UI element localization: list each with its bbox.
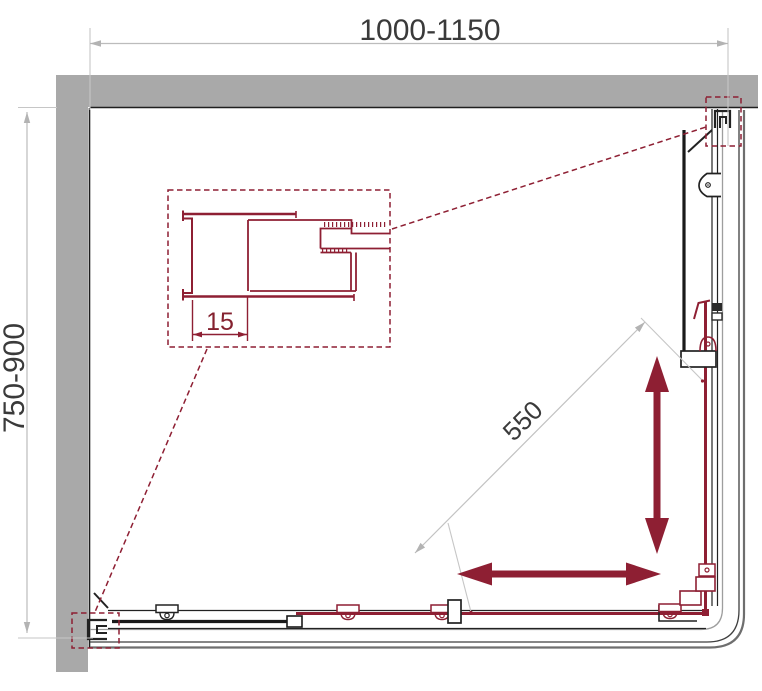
roller-sliding-door-1 (337, 605, 359, 620)
dim-line (415, 322, 645, 553)
dimension-width-label: 1000-1150 (359, 14, 500, 47)
wall-top (56, 75, 758, 107)
door-guide-block-open (712, 313, 722, 320)
dimension-profile-adjustment-label: 15 (206, 308, 234, 336)
detail-inset: 15 (168, 190, 390, 347)
dim-arrow-left (90, 40, 101, 46)
wall-profile-bottom-left (88, 593, 108, 639)
wall-left (56, 75, 88, 672)
glass-clamp-diagonal (688, 130, 712, 152)
dim-arrow-top (24, 112, 30, 123)
roller-wheel (165, 613, 169, 617)
corner-roller-top (699, 564, 715, 576)
callout-leader-top-right (392, 127, 706, 229)
detail-callouts (72, 97, 741, 648)
ext-end-mark-right (701, 379, 704, 382)
slide-arrow-horizontal-icon (457, 563, 661, 586)
door-guide-block-filled (712, 303, 722, 311)
roller-body (156, 605, 178, 613)
roller-body (659, 604, 681, 612)
dimension-entry-diagonal: 550 (415, 318, 704, 614)
bracket-screw-dot (707, 184, 709, 186)
roller-assembly-right (681, 337, 716, 367)
glass-clamp-diagonal (94, 593, 108, 608)
tray-inner-line (90, 110, 723, 630)
roller-fixed-panel (156, 605, 178, 620)
ext-end-mark-bottom (469, 611, 472, 614)
fixed-panel-bottom-end-cap (287, 616, 302, 627)
sliding-door-right-top-hook (694, 301, 710, 320)
dimension-entry-label: 550 (497, 395, 549, 447)
ext-line-to-right-door (641, 318, 703, 381)
dim-arrow-bottom (24, 622, 30, 633)
slide-arrow-vertical-icon (645, 356, 669, 554)
shower-enclosure-plan-drawing: 15 1000-1150 750-900 550 (0, 0, 762, 691)
roller-wheel-housing (700, 337, 716, 351)
dim-arrow-right (717, 40, 728, 46)
corner-junction-block (702, 609, 709, 616)
ext-line-to-bottom-door (448, 523, 471, 612)
callout-leader-bottom-left (95, 349, 207, 612)
corner-roller (659, 604, 681, 619)
slide-direction-arrows (457, 356, 669, 586)
roller-wheel (706, 342, 710, 346)
fixed-panel-bottom (112, 616, 302, 627)
corner-step-1 (680, 591, 701, 605)
roller-body (337, 605, 359, 613)
dimension-depth-label: 750-900 (0, 323, 31, 433)
corner-step-2 (696, 577, 715, 591)
door-end-stopper (448, 600, 461, 623)
